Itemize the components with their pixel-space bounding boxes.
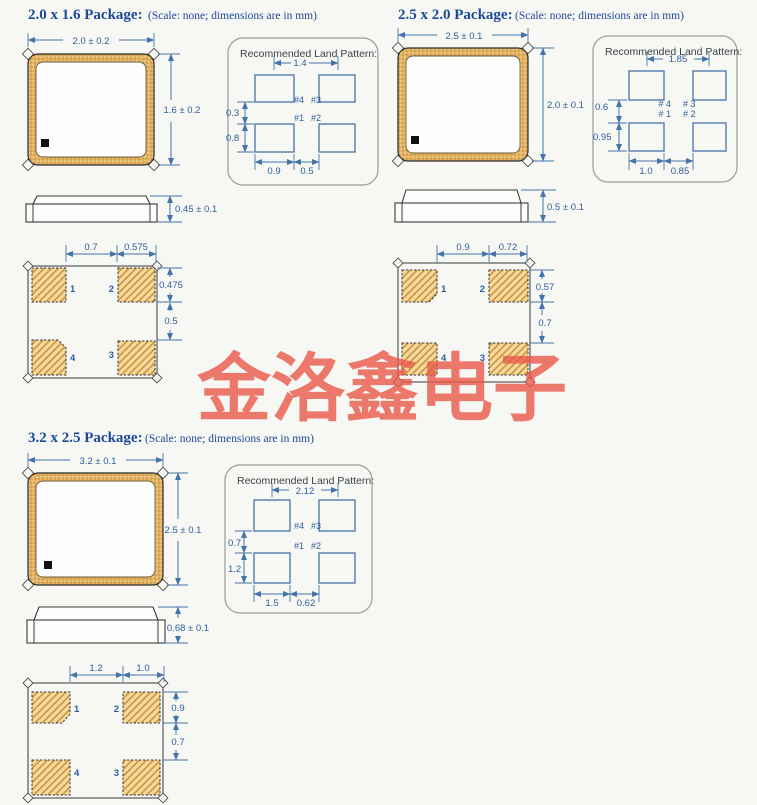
pad-number: 3 (109, 350, 114, 361)
pad-4 (32, 760, 70, 795)
pad-height-dimensions: 0.9 0.7 (163, 692, 188, 760)
land-pad-label: # 2 (683, 109, 696, 119)
pad-4 (32, 340, 66, 375)
dim-label: 1.0 (136, 663, 149, 674)
dim-label: 0.8 (226, 133, 239, 144)
case-profile (395, 203, 528, 222)
pad-3 (123, 760, 160, 795)
top-view-3225: 3.2 ± 0.1 2.5 ± 0.1 (22, 453, 201, 591)
bottom-dimensions: 0.9 0.5 (255, 154, 319, 177)
land-pad-label: #3 (311, 95, 321, 105)
height-dimension: 2.0 ± 0.1 (532, 48, 584, 161)
pin1-mark (44, 561, 52, 569)
dim-label: 1.4 (293, 58, 306, 69)
dim-label: 0.7 (84, 242, 97, 253)
lid-profile (34, 607, 158, 620)
bottom-dimensions: 1.5 0.62 (254, 585, 319, 609)
section-2520: 2.5 x 2.0 Package: (Scale: none; dimensi… (392, 7, 742, 387)
pad-number: 1 (74, 704, 80, 715)
side-view-2016: 0.45 ± 0.1 (26, 196, 217, 222)
dim-label: 2.0 ± 0.2 (73, 36, 110, 47)
dim-label: 0.68 ± 0.1 (167, 623, 209, 634)
land-pad-1 (255, 124, 294, 152)
pad-number: 4 (74, 768, 80, 779)
left-dimensions: 0.3 0.8 (226, 102, 254, 152)
pad-1 (32, 692, 70, 723)
height-dimension: 1.6 ± 0.2 (158, 54, 200, 165)
land-pad-3 (319, 75, 355, 102)
land-pad-2 (693, 123, 726, 151)
land-pattern-title: Recommended Land Pattern: (240, 48, 377, 60)
dim-label: 2.5 ± 0.1 (165, 525, 202, 536)
land-pad-2 (319, 553, 355, 583)
left-dimensions: 0.7 1.2 (228, 531, 252, 583)
dim-label: 0.95 (593, 132, 612, 143)
land-pad-label: #3 (311, 521, 321, 531)
land-pad-label: # 3 (683, 99, 696, 109)
section-note: (Scale: none; dimensions are in mm) (145, 433, 314, 445)
dim-label: 0.9 (456, 242, 469, 253)
case-profile (27, 620, 165, 643)
dim-label: 1.85 (669, 54, 688, 65)
land-pad-label: #1 (294, 113, 304, 123)
side-view-3225: 0.68 ± 0.1 (27, 607, 209, 643)
dim-label: 0.62 (297, 598, 316, 609)
dim-label: 1.2 (89, 663, 102, 674)
section-title: 2.0 x 1.6 Package: (28, 7, 143, 23)
land-pad-label: #4 (294, 521, 304, 531)
height-dimension: 2.5 ± 0.1 (165, 473, 202, 585)
land-pad-4 (254, 500, 290, 531)
pad-number: 3 (114, 768, 119, 779)
land-pad-label: #1 (294, 541, 304, 551)
section-note: (Scale: none; dimensions are in mm) (148, 10, 317, 22)
pin1-mark (411, 136, 419, 144)
land-pad-3 (319, 500, 355, 531)
dim-label: 0.9 (267, 166, 280, 177)
dim-label: 1.0 (639, 166, 652, 177)
land-pad-4 (255, 75, 294, 102)
side-view-2520: 0.5 ± 0.1 (395, 190, 584, 222)
section-title: 2.5 x 2.0 Package: (398, 7, 513, 23)
pad-number: 1 (70, 284, 76, 295)
land-pattern-2520: Recommended Land Pattern: 1.85 # 4 # 3 #… (593, 36, 742, 182)
dim-label: 0.9 (171, 703, 184, 714)
dim-label: 0.575 (124, 242, 148, 253)
pad-height-dimensions: 0.57 0.7 (530, 270, 554, 343)
bottom-dimensions: 1.0 0.85 (629, 153, 693, 177)
dim-label: 0.72 (499, 242, 518, 253)
land-pad-label: #2 (311, 541, 321, 551)
pad-2 (123, 692, 160, 723)
datasheet-page: 2.0 x 1.6 Package: (Scale: none; dimensi… (0, 0, 757, 805)
dim-label: 0.45 ± 0.1 (175, 204, 217, 215)
pad-1 (402, 270, 437, 302)
land-pad-label: # 4 (658, 99, 671, 109)
pad-1 (32, 268, 66, 302)
pad-number: 2 (114, 704, 119, 715)
land-pad-3 (693, 71, 726, 100)
bottom-view-3225: 1 2 4 3 1.2 1.0 0.9 0 (23, 663, 188, 803)
dim-label: 0.7 (171, 737, 184, 748)
section-note: (Scale: none; dimensions are in mm) (515, 10, 684, 22)
dim-label: 0.475 (159, 280, 183, 291)
pad-2 (118, 268, 155, 302)
dim-label: 0.5 (164, 316, 177, 327)
section-3225: 3.2 x 2.5 Package: (Scale: none; dimensi… (22, 430, 374, 803)
land-pad-4 (629, 71, 664, 100)
pad-number: 2 (109, 284, 114, 295)
dim-label: 1.6 ± 0.2 (164, 105, 201, 116)
dim-label: 0.7 (228, 538, 241, 549)
package-lid-area (36, 481, 155, 577)
dim-label: 1.5 (265, 598, 278, 609)
section-2016: 2.0 x 1.6 Package: (Scale: none; dimensi… (22, 7, 378, 383)
watermark-text: 金洛鑫电子 (197, 353, 567, 427)
land-pattern-2016: Recommended Land Pattern: 1.4 #4 #3 #1 #… (226, 38, 378, 185)
land-pad-label: #2 (311, 113, 321, 123)
top-view-2016: 2.0 ± 0.2 1.6 ± 0.2 (22, 33, 200, 171)
pin1-mark (41, 139, 49, 147)
width-dimension: 3.2 ± 0.1 (28, 453, 163, 467)
package-lid-area (36, 62, 146, 157)
dim-label: 0.85 (671, 166, 690, 177)
dim-label: 0.3 (226, 108, 239, 119)
lid-profile (33, 196, 150, 204)
width-dimension: 2.0 ± 0.2 (28, 33, 154, 47)
land-pad-1 (254, 553, 290, 583)
width-dimension: 2.5 ± 0.1 (398, 28, 528, 42)
dim-label: 0.57 (536, 282, 555, 293)
dim-label: 2.5 ± 0.1 (446, 31, 483, 42)
pad-span-dimensions: 0.9 0.72 (437, 242, 527, 262)
pad-span-dimensions: 1.2 1.0 (70, 663, 164, 682)
land-pad-label: #4 (294, 95, 304, 105)
pad-height-dimensions: 0.475 0.5 (157, 268, 183, 340)
section-title: 3.2 x 2.5 Package: (28, 430, 143, 446)
dim-label: 2.0 ± 0.1 (547, 100, 584, 111)
bottom-view-2016: 1 2 4 3 0.7 0.575 0.475 (23, 242, 183, 383)
top-view-2520: 2.5 ± 0.1 2.0 ± 0.1 (392, 28, 584, 167)
thickness-dimension: 0.5 ± 0.1 (521, 190, 584, 222)
package-lid-area (406, 56, 520, 153)
dim-label: 1.2 (228, 564, 241, 575)
land-pad-2 (319, 124, 355, 152)
pad-number: 2 (480, 284, 485, 295)
pad-span-dimensions: 0.7 0.575 (66, 242, 156, 262)
dim-label: 0.5 ± 0.1 (547, 202, 584, 213)
lid-profile (402, 190, 521, 203)
pad-2 (489, 270, 528, 302)
dim-label: 3.2 ± 0.1 (80, 456, 117, 467)
dim-label: 0.6 (595, 102, 608, 113)
thickness-dimension: 0.45 ± 0.1 (150, 196, 217, 222)
land-pad-1 (629, 123, 664, 151)
pad-3 (118, 341, 155, 375)
dim-label: 2.12 (296, 486, 315, 497)
pad-number: 1 (441, 284, 447, 295)
thickness-dimension: 0.68 ± 0.1 (158, 607, 209, 643)
land-pattern-3225: Recommended Land Pattern: 2.12 #4 #3 #1 … (225, 465, 374, 613)
case-profile (26, 204, 157, 222)
pad-number: 4 (70, 353, 76, 364)
left-dimensions: 0.6 0.95 (593, 100, 627, 151)
dim-label: 0.5 (300, 166, 313, 177)
dim-label: 0.7 (538, 318, 551, 329)
land-pad-label: # 1 (658, 109, 671, 119)
